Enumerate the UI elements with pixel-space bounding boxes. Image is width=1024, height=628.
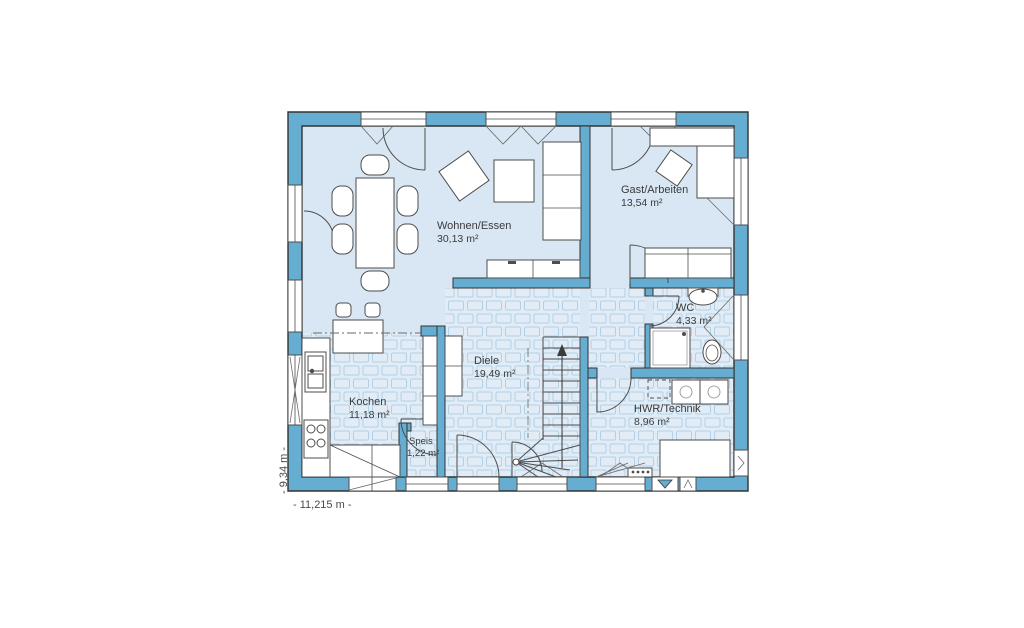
stove <box>304 420 328 458</box>
sideboard <box>487 260 580 278</box>
dining-chair <box>397 186 418 216</box>
wall-living-diele <box>453 278 590 288</box>
washer-dryer <box>672 380 728 404</box>
kitchen-tall-cabinets <box>423 336 437 425</box>
shower <box>650 328 690 368</box>
room-area-hwr-technik: 8,96 m² <box>634 416 670 428</box>
dining-chair <box>361 155 389 175</box>
kitchen-counter-bottom <box>330 445 400 477</box>
dining-chair <box>332 186 353 216</box>
wall-wc-stub <box>645 288 653 296</box>
room-area-gast-arbeiten: 13,54 m² <box>621 197 663 209</box>
wall-kitchen-stub <box>421 326 437 336</box>
bar-stool <box>336 303 351 317</box>
wall-stairs-hwr <box>580 337 588 477</box>
room-label-gast-arbeiten: Gast/Arbeiten <box>621 184 688 196</box>
room-area-kochen: 11,18 m² <box>349 409 390 421</box>
armchair <box>494 160 534 202</box>
toilet <box>703 340 721 364</box>
desk-side <box>697 146 734 198</box>
guest-bed <box>645 248 731 278</box>
room-label-wc: WC <box>676 302 694 314</box>
window-left-living-2 <box>288 280 302 332</box>
entrance-door <box>457 477 499 491</box>
room-area-wohnen-essen: 30,13 m² <box>437 233 479 245</box>
kitchen-sink <box>305 352 326 392</box>
heating-manifold <box>628 468 652 477</box>
floor-plan: Wohnen/Essen 30,13 m² Gast/Arbeiten 13,5… <box>0 0 1024 628</box>
room-label-wohnen-essen: Wohnen/Essen <box>437 220 511 232</box>
room-label-hwr-technik: HWR/Technik <box>634 403 701 415</box>
side-door-hwr <box>734 450 748 476</box>
diele-cabinet <box>445 336 462 396</box>
wall-guest-wc <box>630 278 734 288</box>
corridor-tile-floor <box>589 288 645 368</box>
heating-unit <box>660 440 730 477</box>
utility-marker-vent <box>652 477 678 491</box>
utility-marker-duct <box>680 477 696 491</box>
dimension-width: - 11,215 m - <box>293 499 352 511</box>
room-area-diele: 19,49 m² <box>474 368 516 380</box>
stair-newel-post <box>513 459 519 465</box>
room-area-speis: 1,22 m² <box>407 448 439 459</box>
dining-chair <box>332 224 353 254</box>
dining-chair <box>397 224 418 254</box>
sofa <box>543 142 581 240</box>
wall-wc-hwr <box>631 368 734 378</box>
dining-chair <box>361 271 389 291</box>
bar-stool <box>365 303 380 317</box>
room-label-diele: Diele <box>474 355 499 367</box>
room-area-wc: 4,33 m² <box>676 315 712 327</box>
window-left-living-1 <box>288 185 302 242</box>
desk-top <box>650 128 734 146</box>
room-label-speis: Speis <box>409 436 433 447</box>
dimension-depth: - 9,34 m - <box>278 447 290 494</box>
room-label-kochen: Kochen <box>349 396 386 408</box>
dining-table <box>356 178 394 268</box>
window-bottom-kitchen <box>349 477 396 491</box>
window-left-kitchen <box>288 355 302 425</box>
window-bottom-speis <box>406 477 448 491</box>
